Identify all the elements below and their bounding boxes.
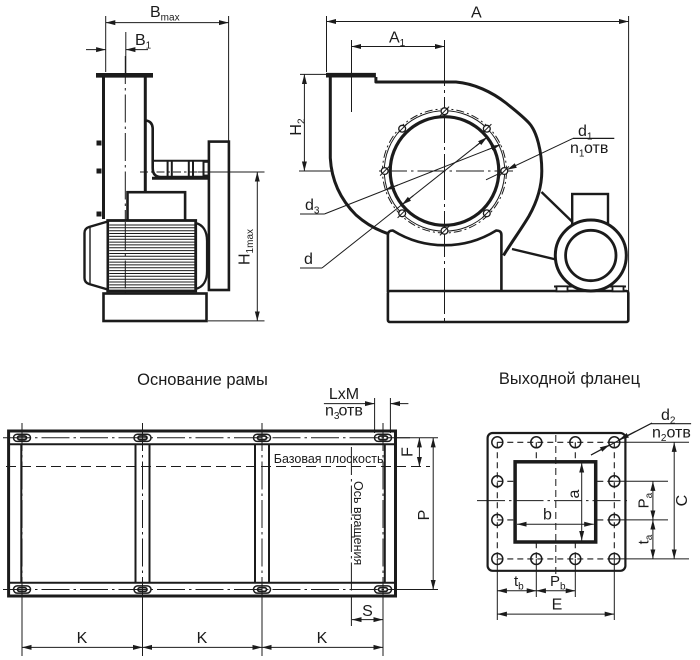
svg-text:C: C [674,495,691,507]
svg-text:d: d [304,251,313,268]
svg-text:отв: отв [339,403,363,420]
svg-text:P: P [416,510,433,521]
svg-text:A: A [471,5,482,22]
svg-text:S: S [362,603,373,620]
svg-text:Ось вращения: Ось вращения [351,481,365,565]
svg-text:K: K [197,630,208,647]
svg-text:F: F [400,447,417,457]
svg-text:Выходной фланец: Выходной фланец [499,370,641,388]
svg-text:отв: отв [584,140,608,157]
svg-text:E: E [552,597,563,614]
svg-text:b: b [543,507,552,524]
svg-text:отв: отв [667,425,691,442]
svg-text:K: K [317,630,328,647]
svg-text:K: K [77,630,88,647]
svg-text:Основание рамы: Основание рамы [137,371,268,389]
svg-text:Базовая плоскость: Базовая плоскость [274,452,384,466]
svg-text:LxM: LxM [329,386,359,403]
svg-text:a: a [566,489,583,498]
